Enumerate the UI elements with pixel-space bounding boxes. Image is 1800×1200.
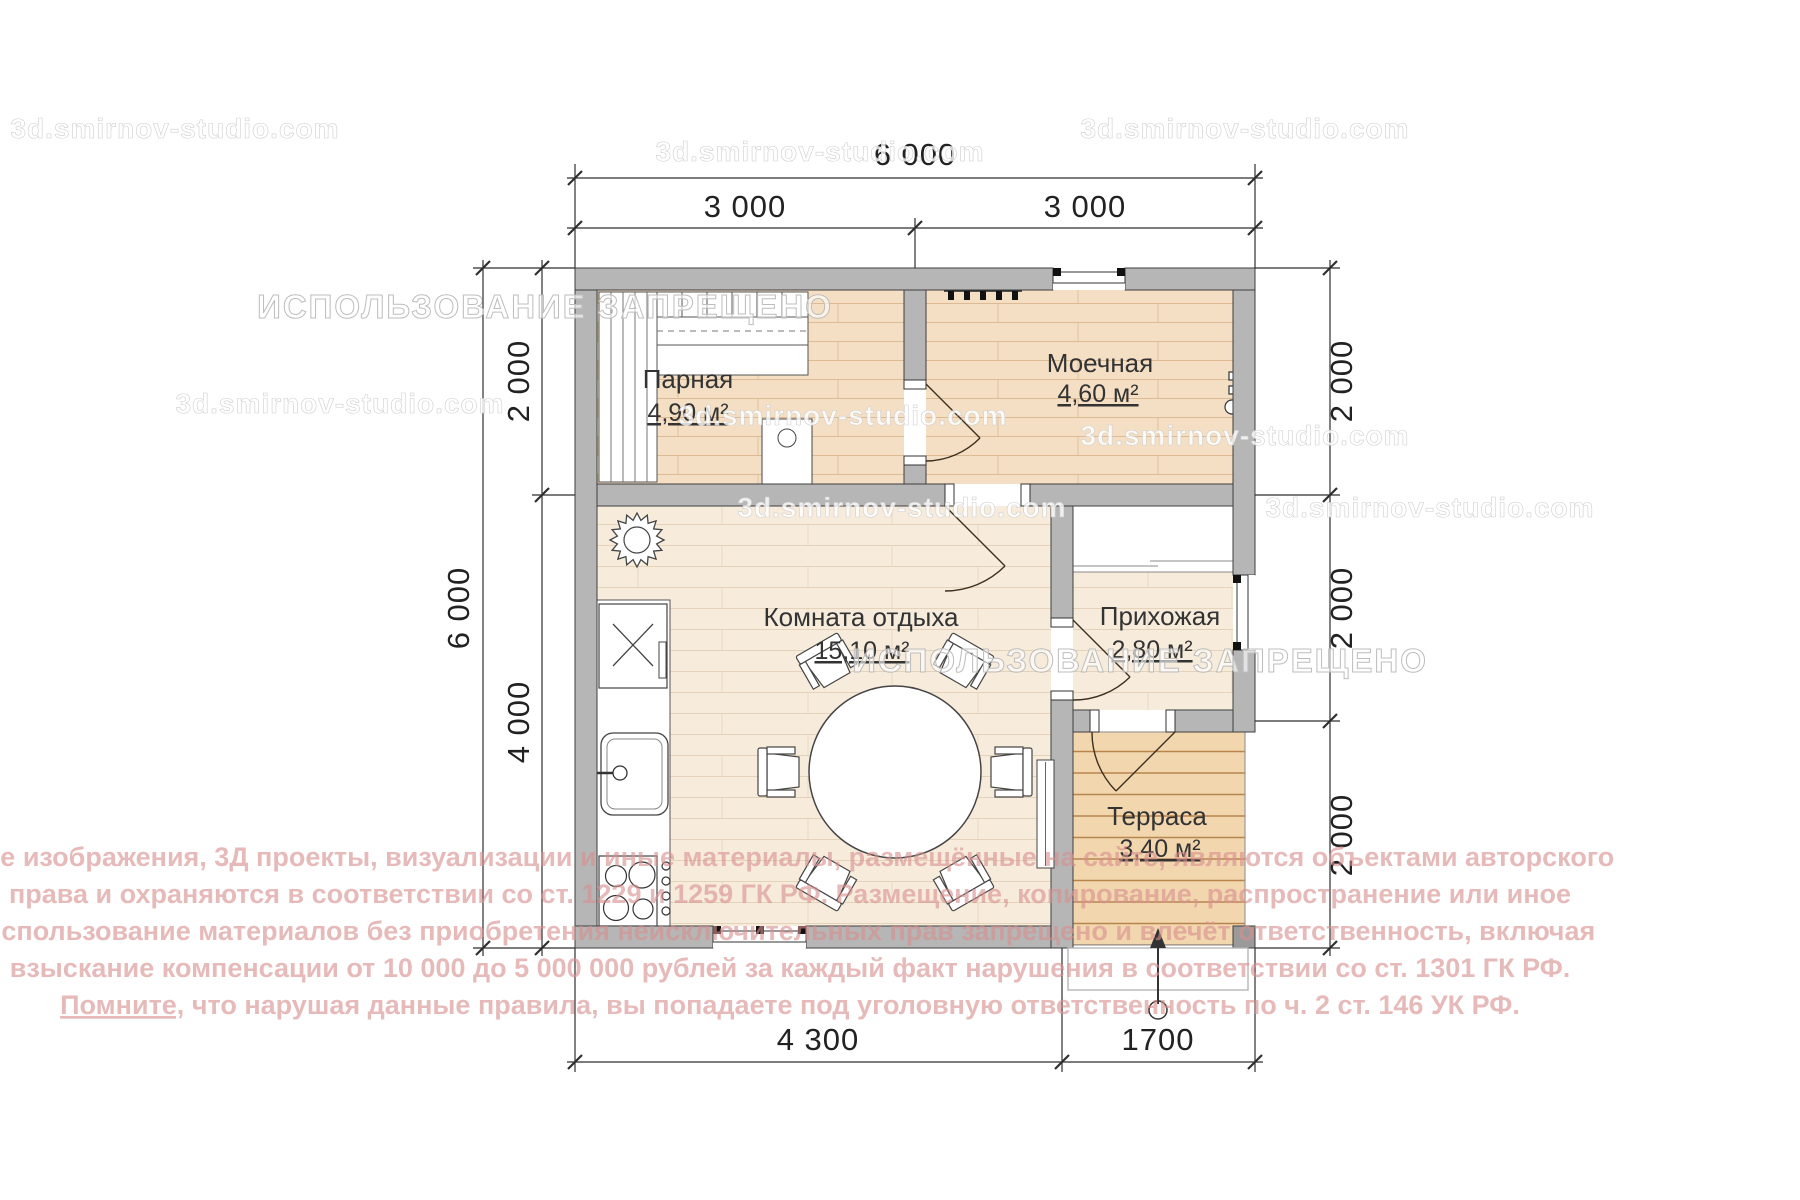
faucet-icon bbox=[613, 766, 627, 780]
copyright-line: Все изображения, 3Д проекты, визуализаци… bbox=[0, 842, 1614, 872]
kitchen-cabinet bbox=[599, 604, 667, 688]
chair bbox=[991, 747, 1032, 797]
watermark-forbidden: ИСПОЛЬЗОВАНИЕ ЗАПРЕЩЕНО bbox=[852, 642, 1428, 679]
watermark-site: 3d.smirnov-studio.com bbox=[10, 113, 339, 144]
floor-plan-svg: Парная 4,90 м² Моечная 4,60 м² Комната о… bbox=[0, 0, 1800, 1200]
dim-witness-top bbox=[575, 164, 1255, 268]
parnaya-name: Парная bbox=[643, 364, 734, 394]
wall-top-right bbox=[1125, 268, 1255, 290]
wall-prihozhaya-terrasa-right bbox=[1175, 710, 1233, 732]
chair bbox=[758, 747, 799, 797]
dim-right-middle: 2 000 bbox=[1324, 567, 1359, 650]
dining-table bbox=[809, 686, 981, 858]
dim-bottom-left: 4 300 bbox=[777, 1022, 860, 1057]
window-moechnaya bbox=[1053, 268, 1125, 290]
closet bbox=[1073, 506, 1233, 572]
dim-left-total: 6 000 bbox=[441, 567, 476, 650]
cabinet-handle bbox=[659, 642, 666, 678]
copyright-line5-underlined: Помните, bbox=[60, 990, 184, 1020]
watermark-site: 3d.smirnov-studio.com bbox=[737, 492, 1066, 523]
wall-top-left bbox=[575, 268, 1053, 290]
dim-left-bottom: 4 000 bbox=[501, 681, 536, 764]
copyright-line: права и охраняются в соответствии со ст.… bbox=[9, 879, 1571, 909]
copyright-line: взыскание компенсации от 10 000 до 5 000… bbox=[10, 953, 1571, 983]
wall-prihozhaya-terrasa-left bbox=[1073, 710, 1090, 732]
kitchen bbox=[597, 600, 670, 926]
watermark-site: 3d.smirnov-studio.com bbox=[175, 388, 504, 419]
watermark-site: 3d.smirnov-studio.com bbox=[678, 400, 1007, 431]
sauna-heater bbox=[610, 513, 664, 567]
dim-top-right: 3 000 bbox=[1044, 189, 1127, 224]
watermark-forbidden: ИСПОЛЬЗОВАНИЕ ЗАПРЕЩЕНО bbox=[257, 288, 833, 325]
terrasa-name: Терраса bbox=[1107, 801, 1207, 831]
copyright-line5-rest: что нарушая данные правила, вы попадаете… bbox=[184, 990, 1520, 1020]
wall-parnaya-moechnaya-upper bbox=[904, 290, 926, 380]
moechnaya-name: Моечная bbox=[1047, 348, 1153, 378]
copyright-line: использование материалов без приобретени… bbox=[0, 916, 1595, 946]
copyright-line: Помните, что нарушая данные правила, вы … bbox=[60, 990, 1520, 1020]
komnata-name: Комната отдыха bbox=[764, 602, 960, 632]
dim-left-top: 2 000 bbox=[501, 340, 536, 423]
wall-parnaya-moechnaya-lower bbox=[904, 465, 926, 484]
window-prihozhaya bbox=[1233, 575, 1255, 650]
watermark-site: 3d.smirnov-studio.com bbox=[1265, 492, 1594, 523]
hallway-closet bbox=[1073, 506, 1233, 572]
moechnaya-area: 4,60 м² bbox=[1057, 380, 1138, 408]
dim-bottom-right: 1700 bbox=[1122, 1022, 1195, 1057]
floor-plan-image: Парная 4,90 м² Моечная 4,60 м² Комната о… bbox=[0, 0, 1800, 1200]
dim-top-left: 3 000 bbox=[704, 189, 787, 224]
watermark-site: 3d.smirnov-studio.com bbox=[1080, 113, 1409, 144]
prihozhaya-name: Прихожая bbox=[1100, 601, 1220, 631]
sauna-stove-chimney-icon bbox=[778, 429, 796, 447]
watermark-site: 3d.smirnov-studio.com bbox=[1080, 420, 1409, 451]
watermark-site: 3d.smirnov-studio.com bbox=[655, 136, 984, 167]
heater-star-icon bbox=[610, 513, 664, 567]
copyright-block: Все изображения, 3Д проекты, визуализаци… bbox=[0, 842, 1614, 1020]
dim-right-top: 2 000 bbox=[1324, 340, 1359, 423]
